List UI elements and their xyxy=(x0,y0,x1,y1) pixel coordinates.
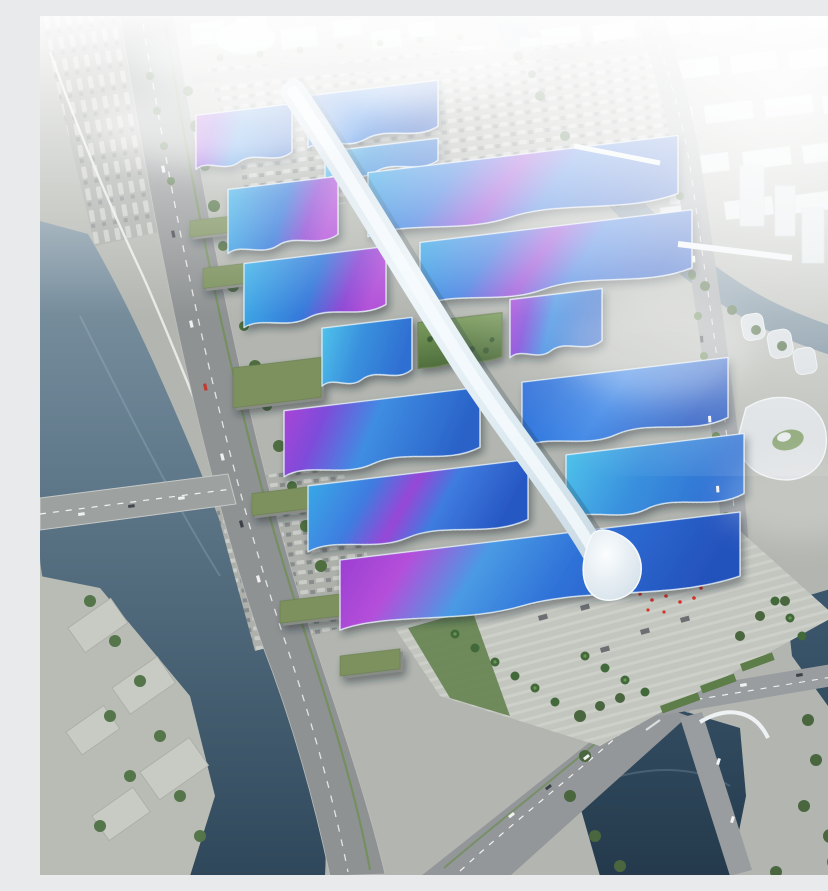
aerial-rendering-exhibition-center: D xyxy=(40,16,828,875)
scene-canvas: D xyxy=(40,16,828,875)
